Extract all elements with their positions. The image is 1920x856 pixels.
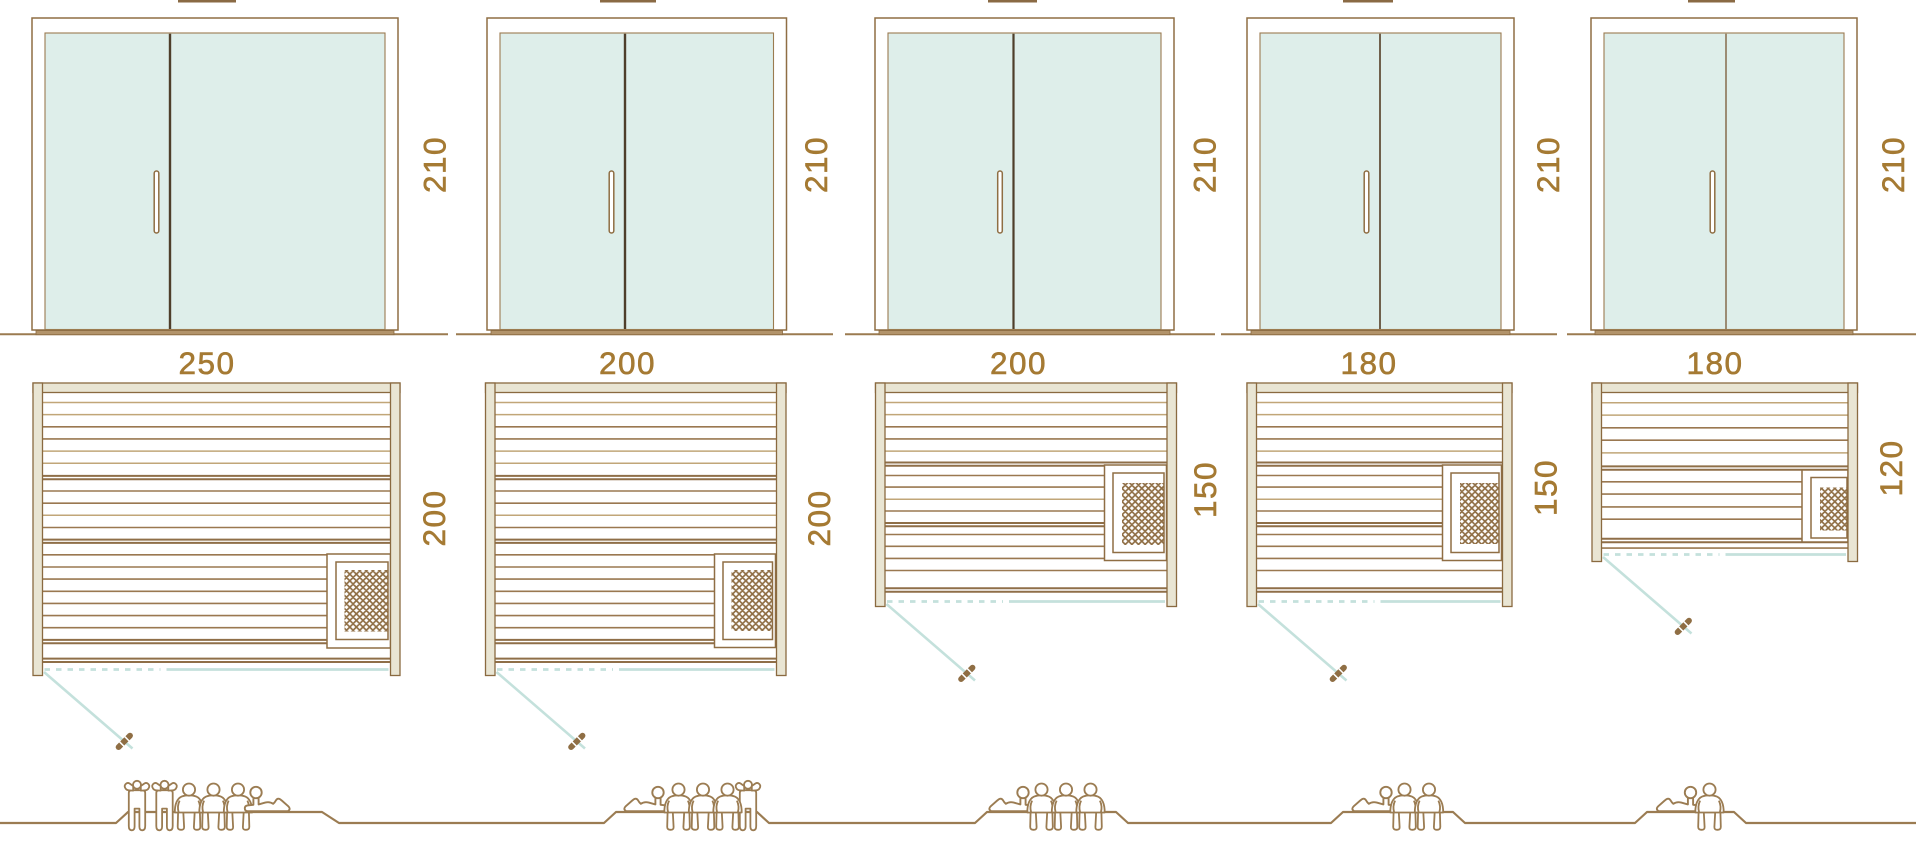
svg-text:180: 180 xyxy=(1686,345,1743,381)
svg-text:200: 200 xyxy=(599,345,656,381)
svg-text:210: 210 xyxy=(1530,136,1566,193)
svg-text:150: 150 xyxy=(1187,461,1223,518)
svg-text:210: 210 xyxy=(417,136,453,193)
svg-text:250: 250 xyxy=(178,345,235,381)
svg-text:180: 180 xyxy=(1340,345,1397,381)
svg-text:210: 210 xyxy=(1187,136,1223,193)
svg-text:200: 200 xyxy=(801,489,837,546)
svg-text:120: 120 xyxy=(1873,439,1909,496)
svg-text:210: 210 xyxy=(1875,136,1911,193)
svg-text:200: 200 xyxy=(416,489,452,546)
svg-text:150: 150 xyxy=(1528,459,1564,516)
svg-text:210: 210 xyxy=(798,136,834,193)
svg-text:200: 200 xyxy=(990,345,1047,381)
